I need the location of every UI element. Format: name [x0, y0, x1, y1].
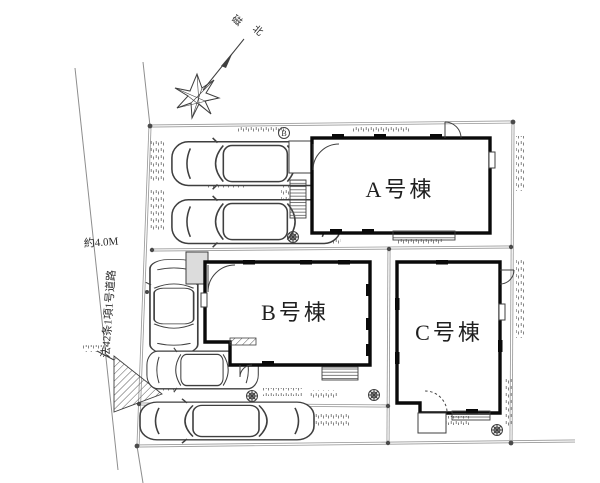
building-a-label: A号棟 [366, 177, 435, 202]
compass-north-icon: 磁 北 [175, 12, 265, 118]
building-b-label: B号棟 [261, 300, 329, 325]
compass-label-kita: 北 [250, 23, 265, 39]
compass-label-ji: 磁 [229, 12, 245, 28]
building-c: C号棟 [395, 260, 514, 433]
road-annotations: 約4.0M 法42条1項1号道路 [83, 234, 119, 359]
road-edge-line [75, 68, 118, 470]
building-a: A号棟 [289, 122, 495, 240]
survey-marker-b-label: B [281, 129, 286, 138]
site-plan-canvas: A号棟 B号棟 C号棟 [0, 0, 600, 483]
site-plan: A号棟 B号棟 C号棟 [0, 0, 600, 483]
car-icon [140, 399, 314, 443]
building-c-label: C号棟 [415, 320, 483, 345]
road-width-label: 約4.0M [83, 234, 119, 250]
